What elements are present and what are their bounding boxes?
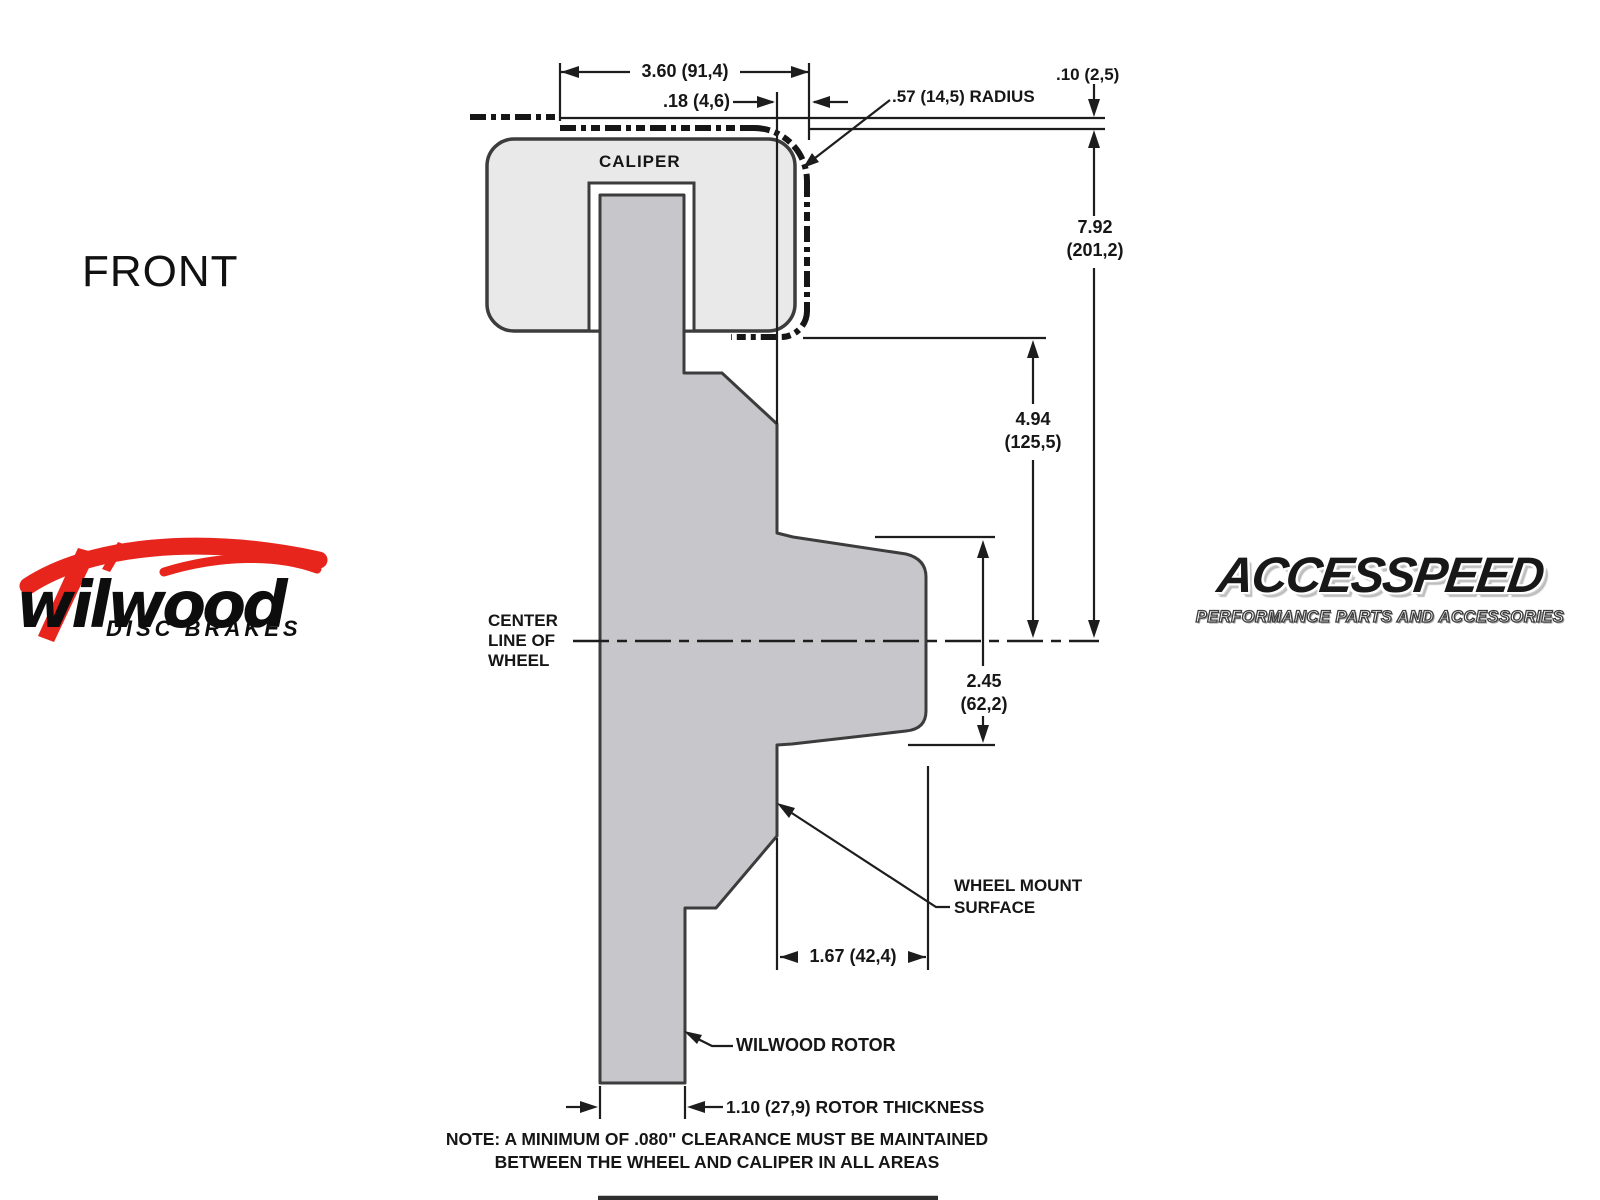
dim-lower-mm: (62,2): [948, 693, 1020, 716]
caliper-label: CALIPER: [599, 152, 681, 172]
brake-dimension-diagram: FRONT CALIPER 3.60 (91,4) .18 (4,6) .57 …: [0, 0, 1600, 1200]
centerline-label: CENTER LINE OF WHEEL: [488, 611, 558, 671]
dim-total-mm: (201,2): [1059, 239, 1131, 262]
dim-upper-label: 4.94 (125,5): [997, 408, 1069, 454]
dim-lower-label: 2.45 (62,2): [948, 670, 1020, 716]
clearance-note: NOTE: A MINIMUM OF .080" CLEARANCE MUST …: [377, 1128, 1057, 1174]
dim-rotor-thickness-label: 1.10 (27,9) ROTOR THICKNESS: [726, 1097, 984, 1117]
dim-lower-inches: 2.45: [948, 670, 1020, 693]
dim-radius-label: .57 (14,5) RADIUS: [892, 87, 1035, 107]
accesspeed-subtitle: PERFORMANCE PARTS AND ACCESSORIES: [1190, 608, 1570, 627]
wheel-mount-surface-label: WHEEL MOUNT SURFACE: [954, 875, 1082, 919]
accesspeed-logo: ACCESSPEED PERFORMANCE PARTS AND ACCESSO…: [1190, 546, 1570, 627]
dim-lip-label: .10 (2,5): [1056, 65, 1119, 85]
wilwood-subtitle: DISC BRAKES: [106, 616, 302, 642]
wilwood-logo: wilwood DISC BRAKES: [14, 528, 334, 660]
dim-clearance-label: .18 (4,6): [648, 91, 730, 112]
accesspeed-wordmark: ACCESSPEED: [1214, 546, 1547, 604]
note-line-2: BETWEEN THE WHEEL AND CALIPER IN ALL ARE…: [377, 1151, 1057, 1174]
view-label: FRONT: [82, 247, 239, 298]
dim-width-label: 3.60 (91,4): [630, 61, 740, 82]
dim-hat-depth-label: 1.67 (42,4): [792, 946, 914, 967]
dim-total-inches: 7.92: [1059, 216, 1131, 239]
dim-total-label: 7.92 (201,2): [1059, 216, 1131, 262]
dim-upper-mm: (125,5): [997, 431, 1069, 454]
wilwood-rotor-label: WILWOOD ROTOR: [736, 1035, 896, 1056]
note-line-1: NOTE: A MINIMUM OF .080" CLEARANCE MUST …: [377, 1128, 1057, 1151]
dim-upper-inches: 4.94: [997, 408, 1069, 431]
